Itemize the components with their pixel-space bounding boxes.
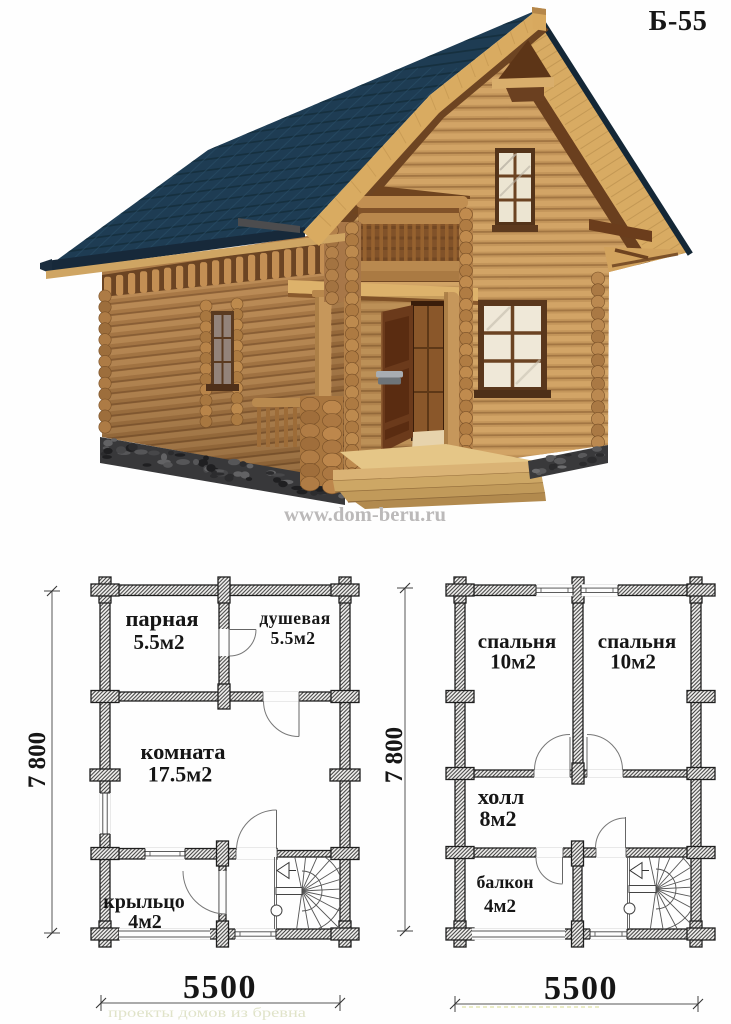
svg-text:7 800: 7 800 <box>24 732 51 788</box>
svg-text:крыльцо: крыльцо <box>103 891 185 913</box>
svg-text:5.5м2: 5.5м2 <box>133 630 184 654</box>
svg-text:4м2: 4м2 <box>484 896 516 917</box>
svg-text:Б-55: Б-55 <box>649 6 708 37</box>
svg-text:проекты домов из бревна: проекты домов из бревна <box>108 1005 306 1020</box>
svg-text:www.dom-beru.ru: www.dom-beru.ru <box>284 504 446 526</box>
svg-text:10м2: 10м2 <box>610 650 656 674</box>
svg-text:балкон: балкон <box>476 872 533 892</box>
svg-text:10м2: 10м2 <box>490 650 536 674</box>
svg-text:душевая: душевая <box>259 608 330 628</box>
svg-text:5.5м2: 5.5м2 <box>270 628 315 648</box>
svg-text:5500: 5500 <box>183 969 257 1006</box>
svg-text:7 800: 7 800 <box>381 727 408 783</box>
svg-text:4м2: 4м2 <box>128 911 162 933</box>
svg-text:парная: парная <box>125 606 198 631</box>
svg-text:8м2: 8м2 <box>480 806 517 831</box>
svg-text:комната: комната <box>140 739 225 764</box>
svg-text:5500: 5500 <box>544 970 618 1007</box>
svg-text:17.5м2: 17.5м2 <box>148 762 213 787</box>
